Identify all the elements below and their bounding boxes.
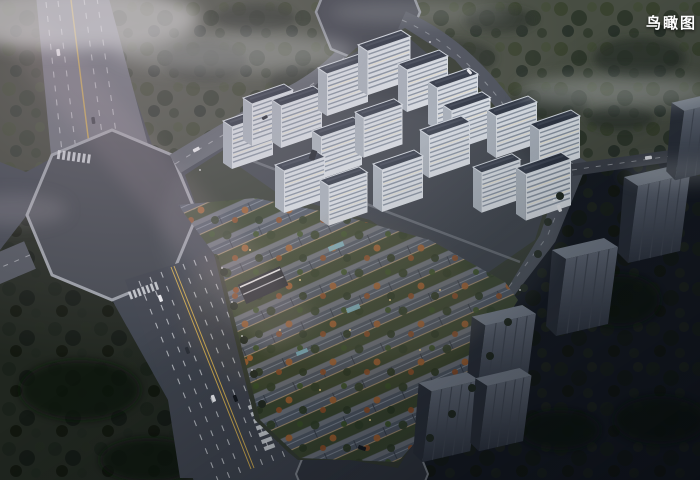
scene-svg: [0, 0, 700, 480]
aerial-rendering: 鸟瞰图: [0, 0, 700, 480]
vignette: [0, 0, 700, 480]
view-label: 鸟瞰图: [646, 12, 697, 33]
